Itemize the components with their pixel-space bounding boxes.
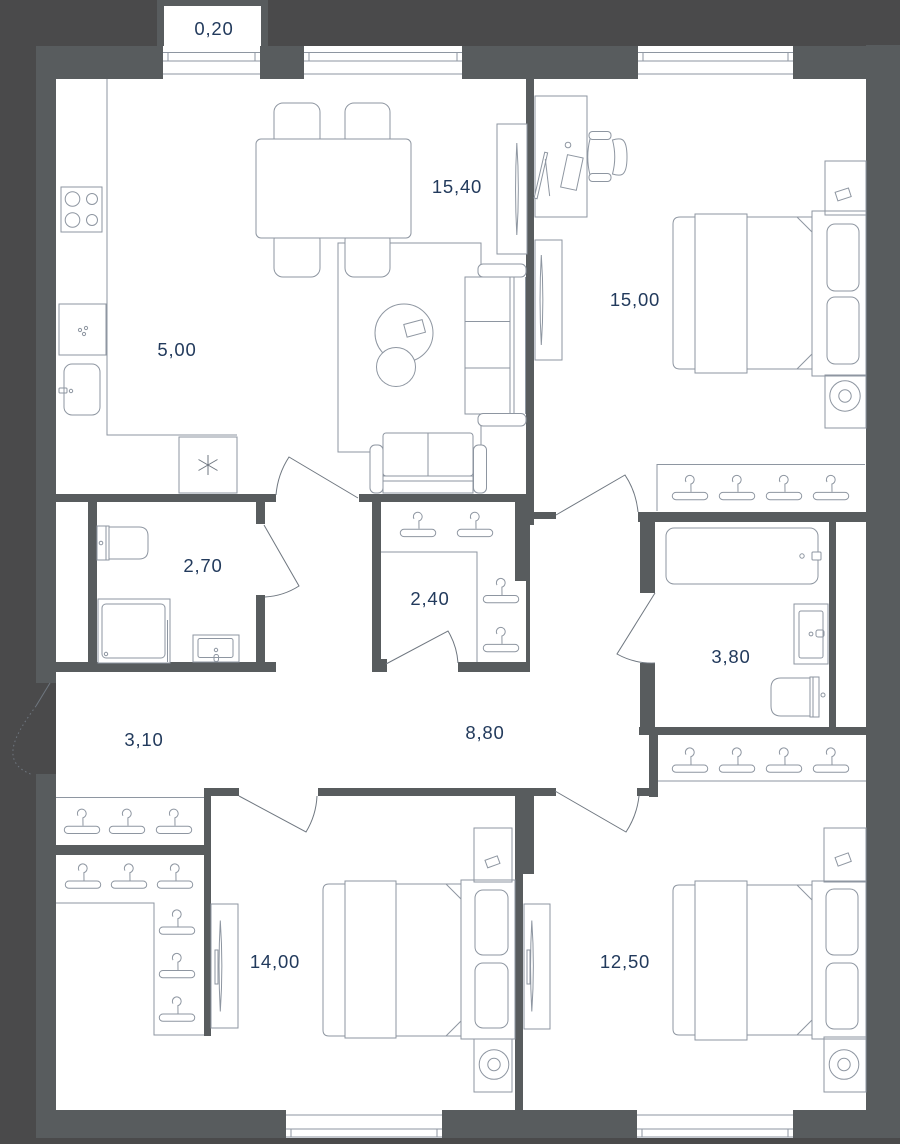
svg-text:2,40: 2,40 — [410, 588, 449, 609]
svg-text:0,20: 0,20 — [194, 18, 233, 39]
svg-text:15,40: 15,40 — [432, 176, 482, 197]
svg-text:15,00: 15,00 — [610, 289, 660, 310]
svg-text:5,00: 5,00 — [157, 339, 196, 360]
svg-text:12,50: 12,50 — [600, 951, 650, 972]
svg-text:3,80: 3,80 — [711, 646, 750, 667]
svg-text:3,10: 3,10 — [124, 729, 163, 750]
svg-text:14,00: 14,00 — [250, 951, 300, 972]
svg-text:2,70: 2,70 — [183, 555, 222, 576]
svg-text:8,80: 8,80 — [465, 722, 504, 743]
